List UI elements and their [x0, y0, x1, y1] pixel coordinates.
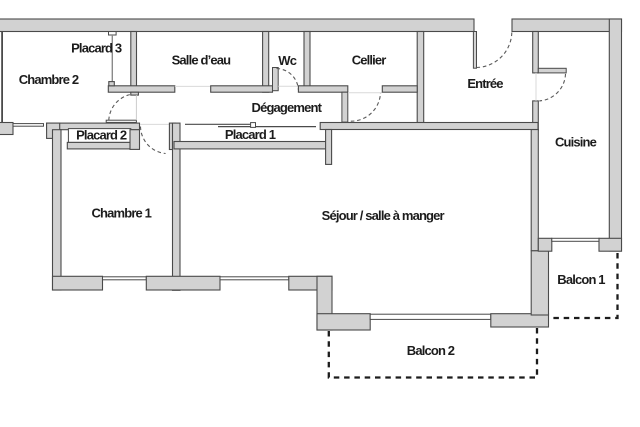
- svg-text:Chambre 1: Chambre 1: [92, 205, 152, 220]
- svg-text:Cellier: Cellier: [352, 53, 387, 68]
- svg-text:Placard 2: Placard 2: [76, 128, 127, 143]
- svg-text:Entrée: Entrée: [467, 76, 503, 91]
- svg-text:Chambre 2: Chambre 2: [19, 72, 79, 87]
- svg-text:Balcon 2: Balcon 2: [407, 343, 455, 358]
- svg-text:Salle d’eau: Salle d’eau: [172, 53, 231, 68]
- svg-text:Balcon 1: Balcon 1: [557, 272, 605, 287]
- svg-text:Placard 3: Placard 3: [71, 40, 122, 55]
- svg-text:Séjour / salle à manger: Séjour / salle à manger: [322, 208, 445, 223]
- svg-text:Cuisine: Cuisine: [555, 135, 597, 150]
- svg-text:Placard 1: Placard 1: [225, 127, 276, 142]
- svg-text:Dégagement: Dégagement: [252, 100, 323, 115]
- svg-text:Wc: Wc: [278, 53, 296, 68]
